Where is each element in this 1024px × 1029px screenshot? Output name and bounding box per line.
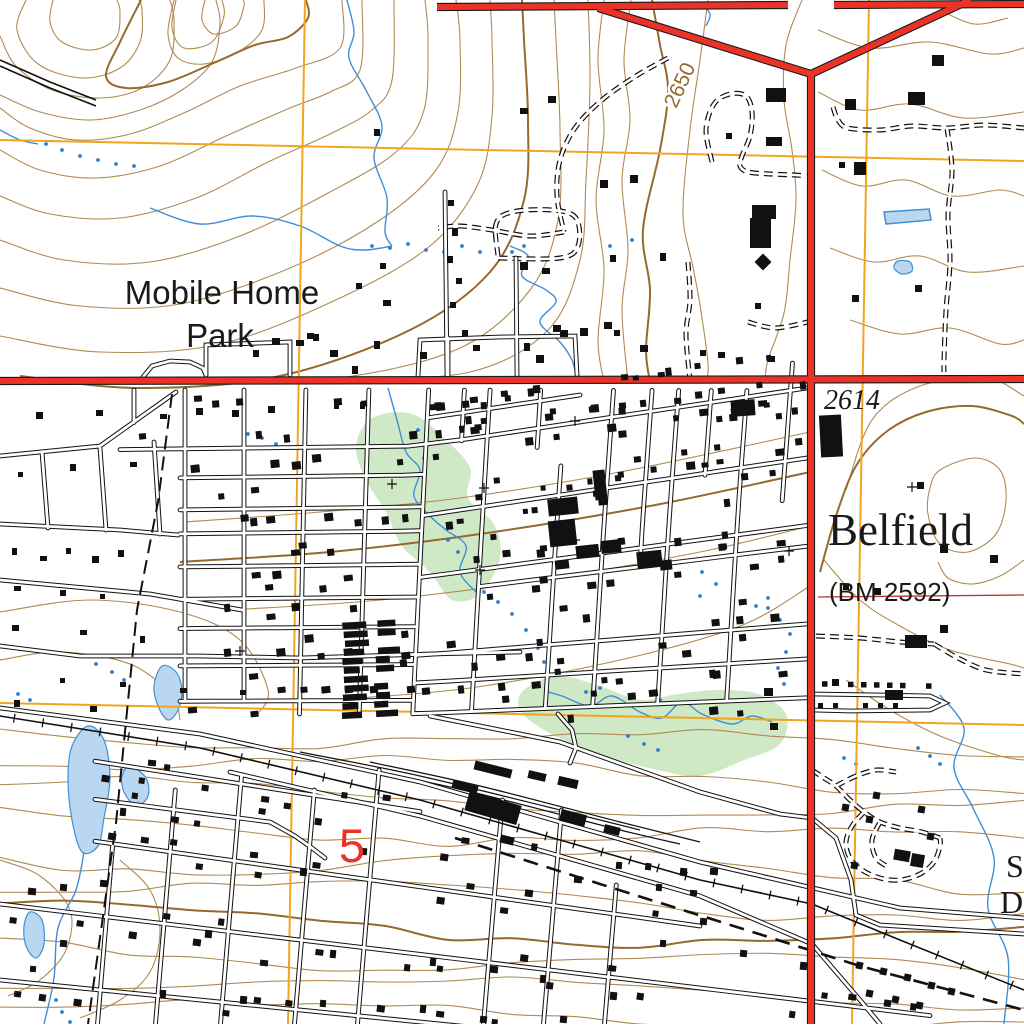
svg-text:(BM 2592): (BM 2592) [829, 577, 950, 607]
svg-text:Park: Park [186, 317, 254, 354]
svg-text:D: D [1000, 884, 1023, 920]
svg-text:2614: 2614 [824, 385, 880, 416]
svg-text:S: S [1006, 848, 1024, 884]
svg-text:5: 5 [339, 819, 365, 872]
svg-text:Belfield: Belfield [828, 505, 973, 555]
svg-text:Mobile Home: Mobile Home [125, 274, 319, 311]
